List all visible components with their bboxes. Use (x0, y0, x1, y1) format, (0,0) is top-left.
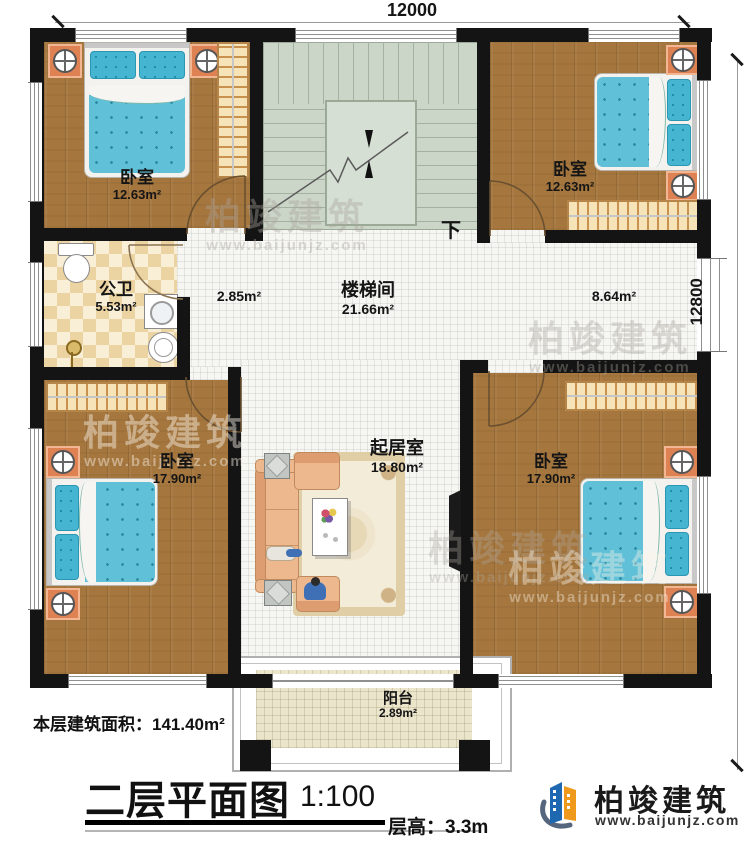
room-area: 21.66m² (318, 301, 418, 317)
toilet-bowl (63, 254, 90, 283)
nightstand (666, 45, 700, 75)
balcony-post-left (240, 740, 271, 771)
floor-height-text: 层高：3.3m (388, 812, 488, 839)
bed-bl (46, 478, 158, 586)
wall-bedroom-bl-right (228, 367, 241, 676)
bed-br (580, 478, 698, 584)
sink-basin (154, 338, 173, 357)
floor-drain (66, 340, 82, 356)
dimension-top-label: 12000 (372, 0, 452, 21)
bed-bl-sheet-fold (79, 482, 96, 582)
room-name: 卧室 (520, 160, 620, 180)
room-name: 卧室 (127, 452, 227, 472)
lamp-icon (195, 49, 219, 73)
window (697, 80, 711, 200)
room-label-stairwell: 楼梯间 21.66m² (318, 280, 418, 317)
plan-scale: 1:100 (300, 780, 375, 814)
room-area: 18.80m² (347, 459, 447, 475)
room-name: 公卫 (66, 280, 166, 300)
room-name: 卧室 (501, 452, 601, 472)
room-label-balcony: 阳台 2.89m² (358, 690, 438, 721)
coffee-table (312, 498, 348, 556)
stairs-down-label: 下 (436, 220, 466, 243)
balcony-post-right (459, 740, 490, 771)
brand-logo: 柏竣建筑 www.baijunjz.com (536, 774, 736, 834)
window (498, 674, 624, 688)
room-area: 2.89m² (358, 707, 438, 721)
bed-br-sheet-fold (643, 481, 660, 581)
room-name: 阳台 (358, 690, 438, 707)
area-label-hall: 2.85m² (199, 288, 279, 304)
window (295, 28, 457, 42)
room-name: 卧室 (87, 168, 187, 188)
person-sitting-head (311, 577, 320, 586)
stair-treads-left (263, 104, 325, 222)
room-area: 12.63m² (520, 180, 620, 195)
table-decor (333, 537, 338, 542)
bed-tl-mattress (89, 95, 185, 173)
bed-tr (594, 73, 698, 171)
dimension-line-top (55, 22, 690, 23)
wall-stairwell-left (250, 28, 263, 241)
side-table (264, 580, 292, 606)
lamp-icon (53, 49, 77, 73)
room-area: 5.53m² (66, 300, 166, 315)
armchair-top (294, 452, 340, 490)
bed-tl-pillow (139, 51, 185, 79)
wall-bedroom-br-top-b (543, 360, 711, 373)
balcony-sliding-door (272, 674, 454, 688)
room-area: 17.90m² (127, 472, 227, 487)
bathroom-sink (148, 332, 179, 363)
window (28, 428, 42, 610)
room-label-living: 起居室 18.80m² (347, 438, 447, 475)
bed-tl (84, 42, 190, 178)
area-label-corridor: 8.64m² (574, 288, 654, 304)
window (68, 674, 207, 688)
room-label-bathroom: 公卫 5.53m² (66, 280, 166, 314)
nightstand (664, 586, 700, 618)
bed-tl-pillow (90, 51, 136, 79)
nightstand (664, 446, 700, 478)
nightstand (666, 171, 700, 201)
door-gap-floor-tr (490, 230, 545, 243)
wardrobe-br (565, 381, 701, 411)
lamp-icon (670, 450, 694, 474)
bed-br-pillow (665, 485, 689, 529)
room-label-bedroom-bl: 卧室 17.90m² (127, 452, 227, 486)
wall-bathroom-bottom (30, 367, 186, 380)
window (28, 82, 42, 202)
stair-treads-right (413, 104, 477, 222)
brand-website: www.baijunjz.com (595, 812, 740, 828)
wall-stairwell-right (477, 28, 490, 243)
floorplan-canvas: 柏竣建筑 www.baijunjz.com 柏竣建筑 www.baijunjz.… (0, 0, 750, 844)
bed-br-pillow (665, 532, 689, 576)
title-underline-thick (85, 820, 385, 825)
window (697, 476, 711, 594)
dimension-line-right (737, 60, 738, 770)
bed-bl-pillow (55, 485, 79, 531)
window (588, 28, 680, 42)
lamp-icon (671, 48, 695, 72)
room-name: 起居室 (347, 438, 447, 459)
flower-vase (320, 507, 338, 525)
tv (449, 490, 461, 572)
wall-bedroom-br-left (460, 360, 473, 676)
wall-bedroom-tr-bottom (545, 230, 711, 243)
lamp-icon (670, 590, 694, 614)
room-area: 17.90m² (501, 472, 601, 487)
wall-stub-tl-door (245, 228, 263, 241)
table-decor (323, 533, 328, 538)
wardrobe-tr (567, 200, 701, 232)
stair-treads-top (278, 42, 462, 104)
brand-logo-icon (536, 774, 588, 830)
door-gap-floor-br (488, 360, 543, 373)
dimension-right-label: 12800 (687, 260, 707, 344)
room-area: 12.63m² (87, 188, 187, 203)
window (28, 262, 42, 347)
room-label-bedroom-tl: 卧室 12.63m² (87, 168, 187, 202)
bed-br-mattress (583, 481, 649, 581)
bed-tr-pillow (667, 79, 691, 121)
wall-bedroom-tl-bottom (30, 228, 187, 241)
bed-bl-headboard (47, 479, 52, 585)
wardrobe-tl (217, 42, 249, 178)
floor-area-text: 本层建筑面积：141.40m² (33, 710, 225, 735)
lamp-icon (51, 592, 75, 616)
room-label-bedroom-tr: 卧室 12.63m² (520, 160, 620, 194)
nightstand (48, 44, 82, 78)
plan-title: 二层平面图 (85, 768, 290, 826)
wardrobe-bl (46, 382, 168, 412)
lamp-icon (671, 174, 695, 198)
lamp-icon (51, 450, 75, 474)
nightstand (46, 588, 80, 620)
room-name: 楼梯间 (318, 280, 418, 301)
bed-tr-pillow (667, 124, 691, 166)
person-lying-legs (286, 549, 302, 557)
bed-bl-pillow (55, 534, 79, 580)
nightstand (46, 446, 80, 478)
window (75, 28, 187, 42)
room-label-bedroom-br: 卧室 17.90m² (501, 452, 601, 486)
bed-tr-sheet-fold (649, 77, 666, 167)
side-table (264, 453, 290, 479)
bed-tr-mattress (597, 77, 657, 167)
bed-tl-headboard (85, 43, 189, 48)
stair-landing (325, 100, 417, 226)
